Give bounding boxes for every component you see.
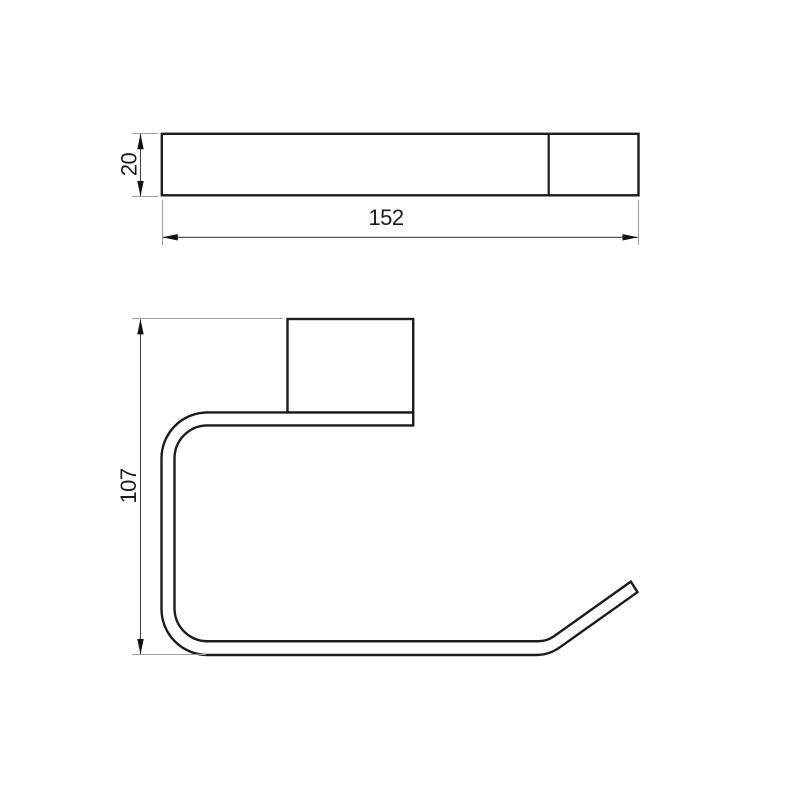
svg-text:107: 107 [116, 468, 141, 503]
svg-text:152: 152 [369, 205, 404, 230]
svg-text:20: 20 [117, 153, 142, 177]
